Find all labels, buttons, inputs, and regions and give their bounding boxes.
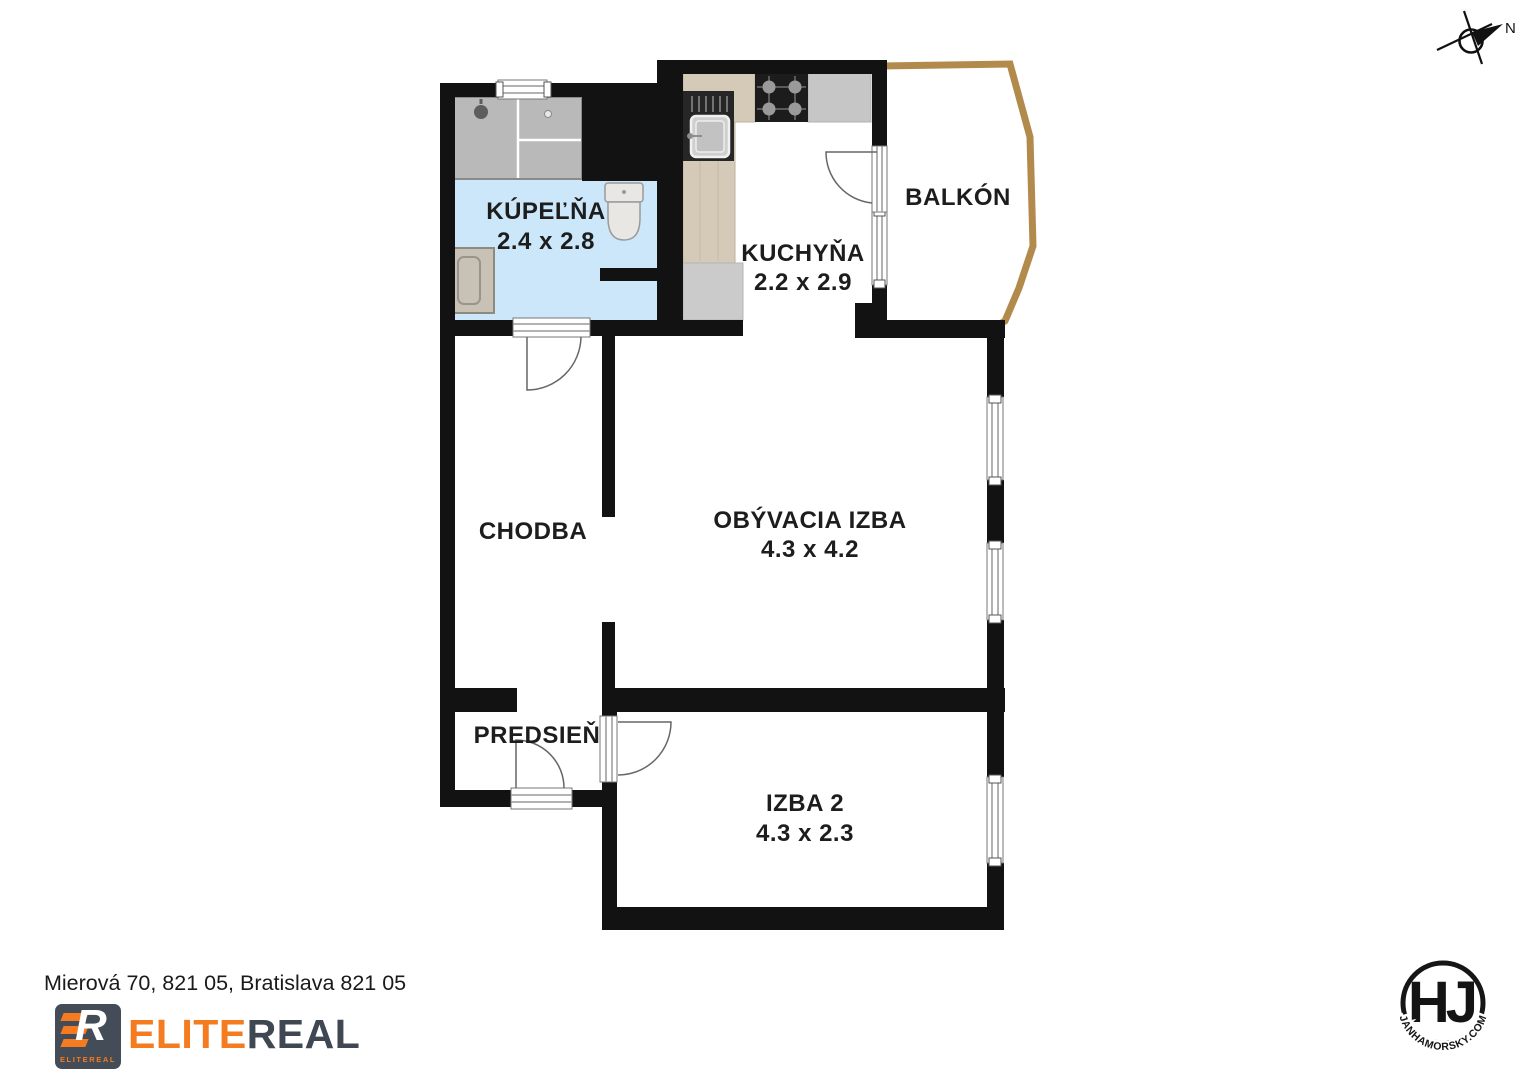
label-izba2: IZBA 2 <box>766 790 844 817</box>
label-balkon: BALKÓN <box>905 183 1011 211</box>
door-izba2 <box>600 716 671 782</box>
brand-icon: R ELITEREAL <box>55 1004 121 1069</box>
toilet-bowl <box>608 202 640 240</box>
shower-head-icon <box>474 105 488 119</box>
window-izba2 <box>987 775 1003 866</box>
wall <box>602 622 615 688</box>
wall <box>440 688 517 712</box>
dims-izba2: 4.3 x 2.3 <box>756 820 854 847</box>
compass-icon: N <box>1437 11 1516 64</box>
wall <box>855 303 872 323</box>
brand-icon-letter: R <box>75 1002 107 1050</box>
wall <box>602 907 1004 930</box>
wall <box>987 620 1004 688</box>
door-entrance <box>511 740 572 809</box>
wall <box>440 790 513 807</box>
brand-word-elite: ELITE <box>128 1011 247 1057</box>
wall <box>987 322 1004 397</box>
kitchen-counter-corner <box>808 73 871 122</box>
compass-north-label: N <box>1505 20 1516 37</box>
label-kupelna: KÚPEĽŇA <box>486 197 606 225</box>
burner <box>789 81 802 94</box>
address-text: Mierová 70, 821 05, Bratislava 821 05 <box>44 971 406 996</box>
wall <box>602 333 615 517</box>
wall <box>657 60 887 74</box>
wall <box>855 320 1005 338</box>
wall <box>657 60 683 322</box>
burner <box>789 103 802 116</box>
toilet-button <box>622 190 626 194</box>
door-balcony <box>826 146 887 212</box>
label-obyvacia: OBÝVACIA IZBA <box>713 506 906 534</box>
wall <box>602 688 1005 712</box>
window-balcony <box>872 208 887 288</box>
brand-icon-label: ELITEREAL <box>55 1055 121 1064</box>
burner <box>763 81 776 94</box>
window-living-1 <box>987 395 1003 485</box>
burner <box>763 103 776 116</box>
wall-stub <box>600 268 663 281</box>
label-kuchyna: KUCHYŇA <box>741 239 865 267</box>
photographer-monogram: HJ <box>1408 970 1475 1035</box>
brand-word-real: REAL <box>247 1011 361 1057</box>
window-living-2 <box>987 541 1003 623</box>
window-bathroom <box>496 80 551 99</box>
kitchen-counter-bottom <box>683 263 743 320</box>
floor-plan-svg: KÚPEĽŇA 2.4 x 2.8 KUCHYŇA 2.2 x 2.9 BALK… <box>0 0 1526 1080</box>
wall <box>872 285 887 322</box>
door-bathroom <box>513 318 590 390</box>
wall <box>602 782 617 928</box>
dims-kupelna: 2.4 x 2.8 <box>497 228 595 255</box>
wall <box>987 480 1004 543</box>
photographer-logo: HJ JANHAMORSKY.COM JANHAMORSKY.COM <box>1397 963 1490 1053</box>
dims-kuchyna: 2.2 x 2.9 <box>754 269 852 296</box>
shower-drain <box>545 111 552 118</box>
wall <box>547 83 663 97</box>
floorplan-page: KÚPEĽŇA 2.4 x 2.8 KUCHYŇA 2.2 x 2.9 BALK… <box>0 0 1526 1080</box>
stove <box>755 74 808 122</box>
dims-obyvacia: 4.3 x 4.2 <box>761 536 859 563</box>
wall <box>872 60 887 148</box>
duct-block <box>582 95 660 181</box>
wall <box>440 320 513 336</box>
brand-wordmark: ELITEREAL <box>128 1011 360 1058</box>
wall <box>572 790 604 807</box>
wall <box>987 712 1004 777</box>
label-predsien: PREDSIEŇ <box>474 721 601 749</box>
label-chodba: CHODBA <box>479 518 587 545</box>
